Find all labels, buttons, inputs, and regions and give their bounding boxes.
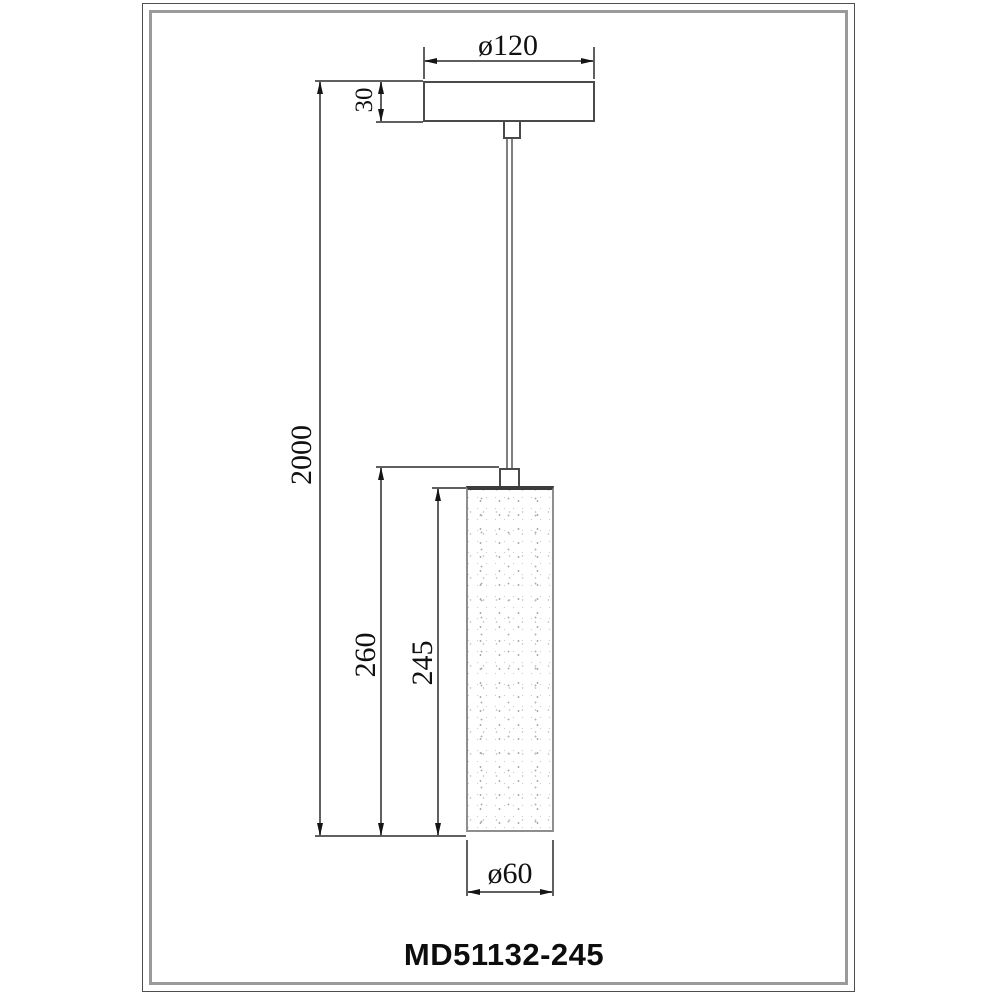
extension-line [376,466,499,468]
dimension-arrow-up-icon [435,488,441,501]
dimension-arrow-down-icon [378,823,384,836]
dimension-arrow-up-icon [378,467,384,480]
extension-line [315,835,466,837]
model-number: MD51132-245 [404,937,604,973]
cylindrical-shade [466,486,554,832]
dimension-arrow-right-icon [540,889,553,895]
ceiling-canopy [423,81,595,122]
extension-line [466,840,468,896]
dimension-label-canopy-diameter: ø120 [478,29,538,63]
dimension-arrow-down-icon [435,823,441,836]
dimension-label-shade-diameter: ø60 [488,857,533,891]
drawing-canvas: ø120 30 2000 260 245 [0,0,1000,1000]
dimension-label-canopy-height: 30 [351,88,379,113]
canopy-stem [503,120,521,139]
suspension-wire [506,139,513,469]
dimension-label-shade-body-height: 245 [406,641,440,686]
dimension-arrow-down-icon [317,823,323,836]
dimension-label-drop-length: 2000 [285,425,319,485]
shade-top-connector [499,468,520,488]
extension-line [315,80,423,82]
dimension-line [319,81,321,836]
dimension-arrow-up-icon [317,81,323,94]
dimension-arrow-left-icon [424,58,437,64]
dimension-arrow-right-icon [581,58,594,64]
dimension-label-shade-overall-height: 260 [349,633,383,678]
extension-line [552,840,554,896]
dimension-arrow-left-icon [467,889,480,895]
